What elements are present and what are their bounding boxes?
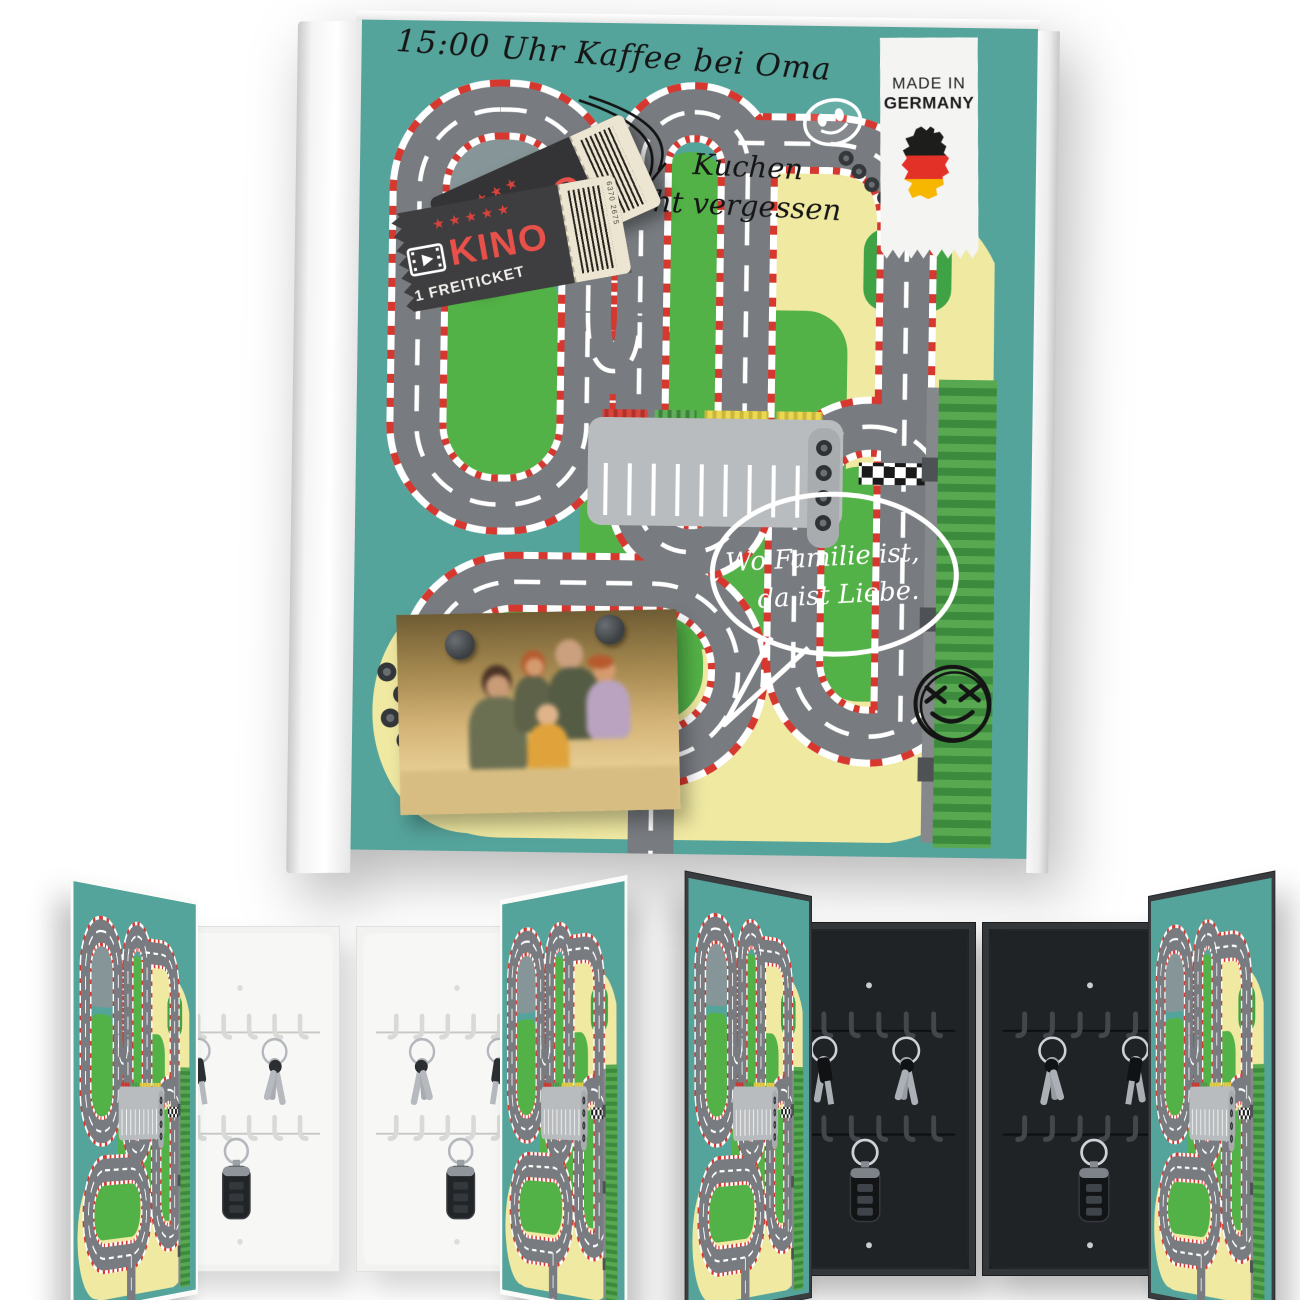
gallery-open-cabinet-black-door-left	[660, 896, 978, 1298]
gallery-open-cabinet-black-door-right	[980, 896, 1300, 1298]
germany-map-icon	[896, 123, 962, 203]
badge-line1: MADE IN	[880, 75, 978, 93]
family-photo-content	[396, 609, 680, 815]
cabinet-front-design: 15:00 Uhr Kaffee bei Oma Kuchen nicht ve…	[350, 20, 1038, 859]
box-spine	[286, 21, 362, 874]
badge-line2: GERMANY	[880, 93, 978, 113]
gallery-open-cabinet-white-door-left	[46, 900, 342, 1294]
cinema-ticket-front: ★★★★★ KINO 1 FREITICKET 6370 2675	[390, 174, 632, 313]
main-product-shot: 15:00 Uhr Kaffee bei Oma Kuchen nicht ve…	[286, 19, 1062, 888]
cabinet-door	[500, 875, 627, 1300]
gallery-open-cabinet-white-door-right	[354, 900, 652, 1294]
made-in-germany-badge: MADE IN GERMANY	[880, 37, 979, 265]
quote-line1: Wo Familie ist,	[725, 538, 921, 579]
cabinet-door	[71, 875, 198, 1300]
family-photo	[396, 609, 680, 815]
product-image: 15:00 Uhr Kaffee bei Oma Kuchen nicht ve…	[0, 0, 1300, 1300]
cinema-tickets: ★★★★ O ★★★★★	[395, 162, 698, 366]
cabinet-door	[685, 870, 812, 1300]
film-reel-icon	[404, 240, 449, 281]
cabinet-door	[1148, 870, 1275, 1300]
family-quote: Wo Familie ist, da ist Liebe.	[724, 532, 978, 621]
